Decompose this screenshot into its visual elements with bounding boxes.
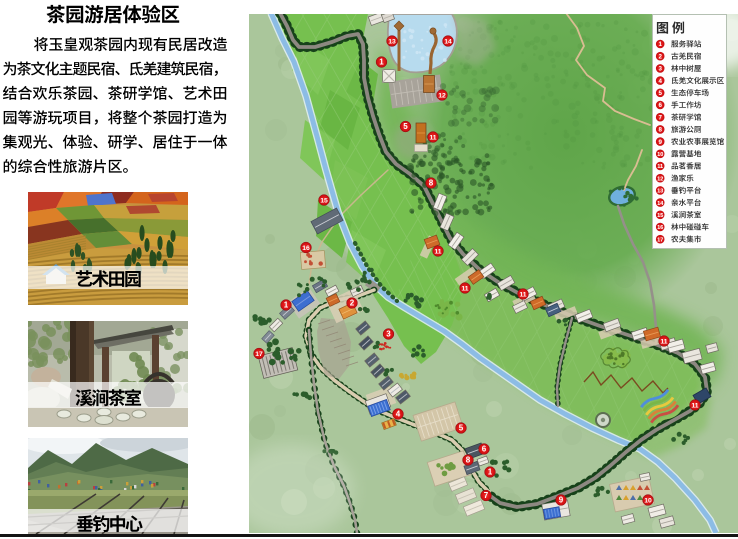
svg-text:9: 9 (559, 496, 564, 505)
svg-text:10: 10 (657, 152, 663, 158)
svg-text:11: 11 (434, 249, 441, 256)
svg-text:3: 3 (386, 330, 391, 339)
svg-text:11: 11 (519, 292, 526, 299)
svg-text:1: 1 (379, 58, 384, 67)
svg-text:15: 15 (657, 213, 663, 219)
svg-text:14: 14 (444, 39, 452, 46)
svg-text:1: 1 (488, 468, 493, 477)
svg-text:1: 1 (284, 301, 289, 310)
svg-text:2: 2 (658, 53, 662, 60)
svg-text:6: 6 (658, 102, 662, 109)
svg-text:6: 6 (482, 445, 487, 454)
svg-text:11: 11 (691, 403, 698, 410)
svg-text:11: 11 (461, 286, 468, 293)
svg-text:1: 1 (658, 41, 662, 48)
svg-text:10: 10 (644, 498, 652, 505)
svg-text:17: 17 (255, 351, 263, 358)
svg-text:11: 11 (429, 135, 436, 142)
svg-text:5: 5 (459, 424, 464, 433)
svg-text:2: 2 (350, 299, 355, 308)
svg-text:5: 5 (403, 122, 408, 131)
svg-text:11: 11 (660, 339, 667, 346)
svg-text:8: 8 (658, 127, 662, 134)
svg-text:8: 8 (466, 456, 471, 465)
svg-text:5: 5 (658, 90, 662, 97)
svg-text:7: 7 (658, 114, 662, 121)
svg-text:12: 12 (657, 176, 663, 182)
svg-text:11: 11 (657, 164, 663, 170)
svg-text:4: 4 (396, 410, 401, 419)
svg-text:7: 7 (484, 491, 489, 500)
svg-text:16: 16 (657, 225, 663, 231)
svg-text:8: 8 (429, 179, 434, 188)
svg-text:9: 9 (658, 139, 662, 146)
svg-text:13: 13 (657, 189, 663, 195)
svg-text:16: 16 (302, 245, 310, 252)
svg-text:13: 13 (388, 39, 396, 46)
svg-text:4: 4 (658, 78, 662, 85)
svg-text:3: 3 (658, 66, 662, 73)
svg-text:12: 12 (438, 93, 446, 100)
svg-text:17: 17 (657, 237, 663, 243)
svg-text:15: 15 (320, 198, 328, 205)
svg-text:14: 14 (657, 201, 664, 207)
